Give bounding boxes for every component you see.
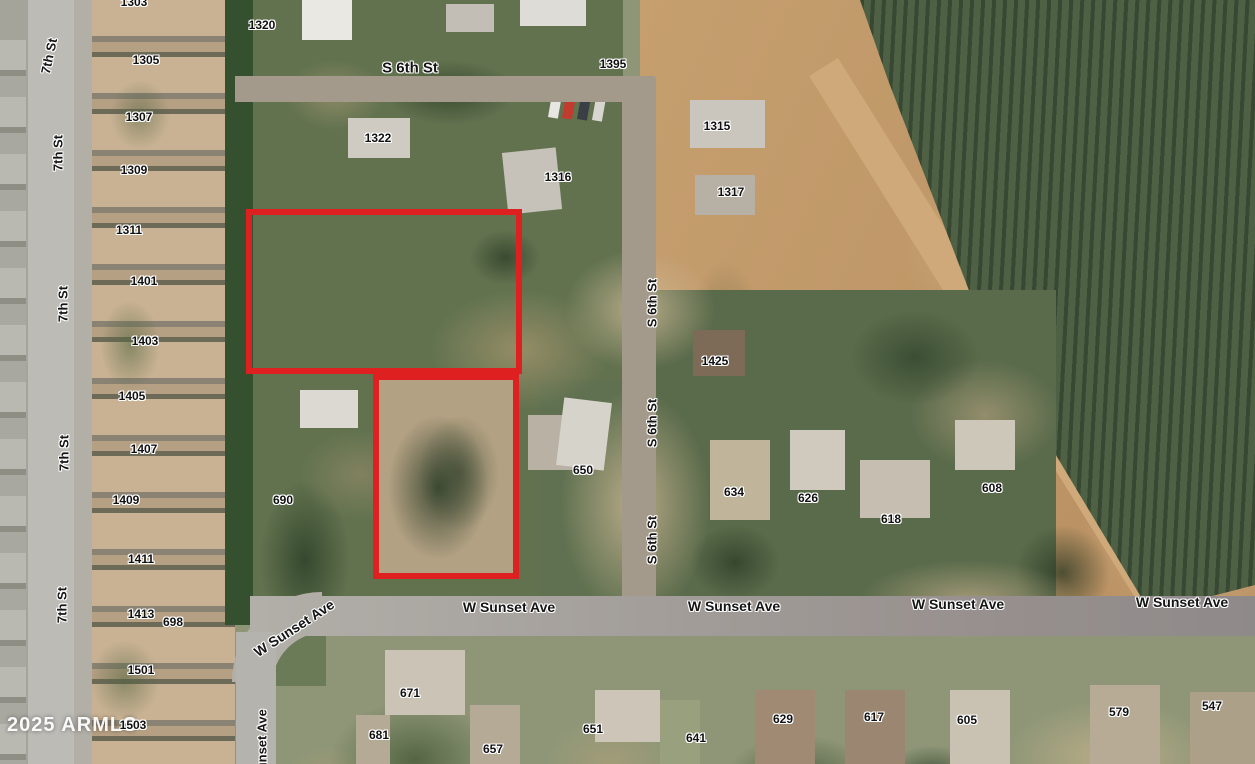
- parcel-number-label: 1405: [119, 389, 146, 403]
- parcel-number-label: 1395: [600, 57, 627, 71]
- parcel-number-label: 1403: [132, 334, 159, 348]
- parcel-number-label: 1413: [128, 607, 155, 621]
- parcel-number-label: 1322: [365, 131, 392, 145]
- parcel-number-label: 629: [773, 712, 793, 726]
- parcel-number-label: 1307: [126, 110, 153, 124]
- building: [302, 0, 352, 40]
- building-629: [755, 690, 815, 764]
- parcel-number-label: 1501: [128, 663, 155, 677]
- street-label: W Sunset Ave: [463, 599, 555, 615]
- parcel-number-label: 634: [724, 485, 744, 499]
- parcel-number-label: 641: [686, 731, 706, 745]
- parcel-number-label: 1425: [702, 354, 729, 368]
- neighborhood-west-block: [0, 0, 235, 764]
- parcel-number-label: 1409: [113, 493, 140, 507]
- parcel-number-label: 1407: [131, 442, 158, 456]
- parcel-number-label: 605: [957, 713, 977, 727]
- building-634: [710, 440, 770, 520]
- street-label: 7th St: [51, 135, 66, 171]
- parcel-number-label: 650: [573, 463, 593, 477]
- parcel-number-label: 651: [583, 722, 603, 736]
- parcel-number-label: 1303: [121, 0, 148, 9]
- building-617: [845, 690, 905, 764]
- building-618: [860, 460, 930, 518]
- building-626: [790, 430, 845, 490]
- parcel-number-label: 1401: [131, 274, 158, 288]
- street-label: S 6th St: [645, 399, 660, 447]
- parcel-number-label: 657: [483, 742, 503, 756]
- building-650: [556, 397, 612, 470]
- street-label: W Sunset Ave: [1136, 594, 1228, 610]
- street-label: W Sunset Ave: [688, 598, 780, 614]
- building-671: [385, 650, 465, 715]
- parcel-number-label: 1411: [128, 552, 154, 566]
- building-1425: [693, 330, 745, 376]
- parcel-number-label: 690: [273, 493, 293, 507]
- street-label: W Sunset Ave: [255, 709, 270, 764]
- building-579: [1090, 685, 1160, 764]
- building-651: [595, 690, 660, 742]
- parcel-outline-1: [246, 209, 522, 374]
- building: [446, 4, 494, 32]
- parcel-number-label: 1311: [116, 223, 142, 237]
- yard-trees: [0, 0, 235, 764]
- street-label: W Sunset Ave: [912, 596, 1004, 612]
- parcel-number-label: 1320: [249, 18, 276, 32]
- parcel-number-label: 1503: [120, 718, 147, 732]
- street-label: S 6th St: [645, 279, 660, 327]
- parcel-number-label: 617: [864, 710, 884, 724]
- parcel-number-label: 547: [1202, 699, 1222, 713]
- building-690: [300, 390, 358, 428]
- parcel-number-label: 698: [163, 615, 183, 629]
- parcel-number-label: 1317: [718, 185, 745, 199]
- parcel-number-label: 618: [881, 512, 901, 526]
- parcel-number-label: 1315: [704, 119, 731, 133]
- parcel-number-label: 1305: [133, 53, 160, 67]
- parcel-number-label: 626: [798, 491, 818, 505]
- street-label: S 6th St: [382, 60, 438, 77]
- building-605: [950, 690, 1010, 764]
- street-label: 7th St: [55, 587, 70, 623]
- armls-watermark: 2025 ARMLS: [7, 714, 137, 737]
- parcel-number-label: 579: [1109, 705, 1129, 719]
- street-label: 7th St: [56, 286, 71, 322]
- road-s-6th-st-horizontal: [235, 76, 655, 102]
- parcel-number-label: 1309: [121, 163, 148, 177]
- parcel-number-label: 681: [369, 728, 389, 742]
- building: [520, 0, 586, 26]
- street-label: S 6th St: [645, 516, 660, 564]
- satellite-map-image: 7th St7th St7th St7th St7th StS 6th StS …: [0, 0, 1255, 764]
- building-608: [955, 420, 1015, 470]
- building-547: [1190, 692, 1255, 764]
- parcel-number-label: 1316: [545, 170, 572, 184]
- parcel-outline-2: [373, 374, 519, 579]
- parcel-number-label: 608: [982, 481, 1002, 495]
- street-label: 7th St: [57, 435, 72, 471]
- parcel-number-label: 671: [400, 686, 420, 700]
